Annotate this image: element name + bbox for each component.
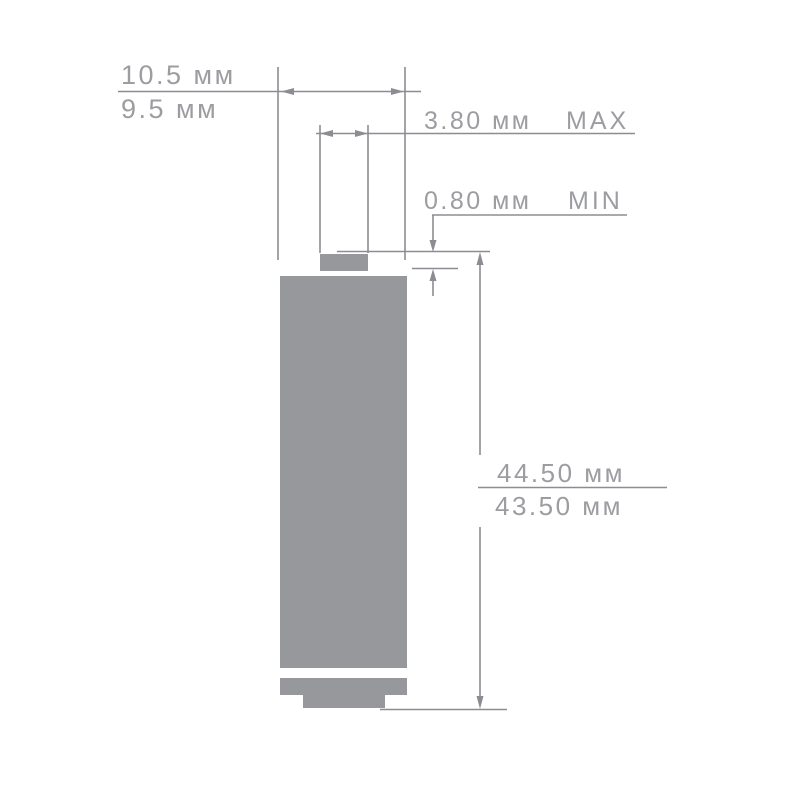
tip-protrusion-min-qualifier: MIN [568, 189, 623, 214]
battery-dimension-drawing: 10.5 мм 9.5 мм 3.80 мм MAX 0.80 мм MIN 4… [0, 0, 800, 800]
arrow-right-icon [391, 88, 404, 95]
arrow-left-icon [281, 88, 294, 95]
battery-bottom-rim [303, 695, 385, 708]
arrow-left-icon [320, 130, 333, 137]
battery-body [280, 276, 407, 668]
battery-terminal-nub [320, 254, 368, 271]
arrow-down-icon [430, 240, 437, 252]
height-min-label: 43.50 мм [495, 493, 623, 519]
battery-drawing-svg [0, 0, 800, 800]
diameter-max-label: 10.5 мм [121, 62, 236, 89]
height-max-label: 44.50 мм [497, 460, 625, 486]
tip-diameter-max-qualifier: MAX [566, 109, 629, 134]
arrow-right-icon [355, 130, 368, 137]
diameter-min-label: 9.5 мм [121, 96, 218, 123]
tip-protrusion-label: 0.80 мм [424, 189, 531, 214]
battery-bottom-cap [280, 678, 407, 695]
tip-diameter-label: 3.80 мм [424, 109, 531, 134]
arrow-down-icon [477, 696, 484, 709]
